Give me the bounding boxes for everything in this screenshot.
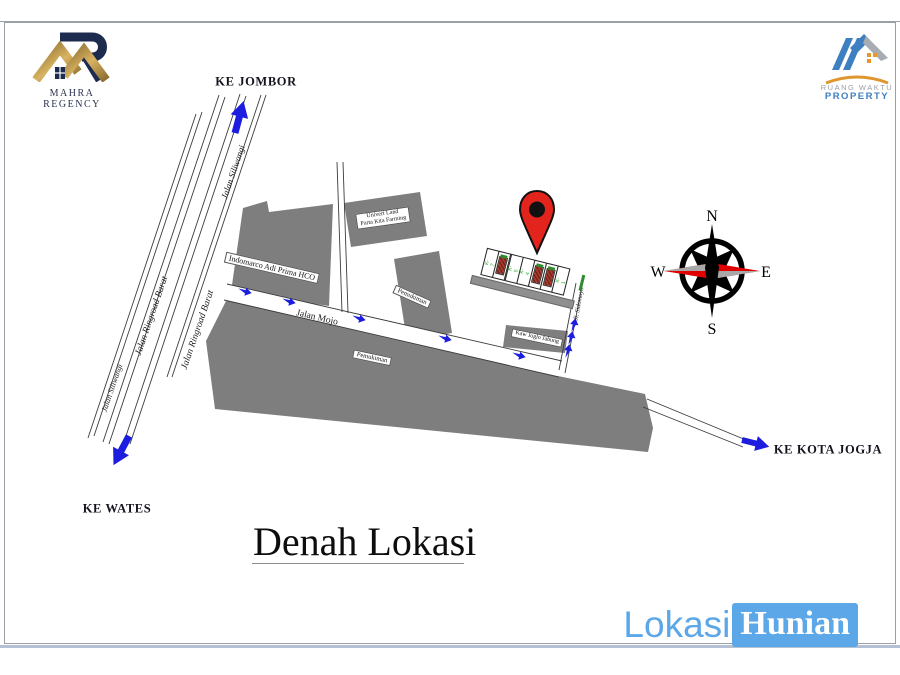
road-vertical-line [337,162,342,312]
logo-window-dot [867,59,871,63]
property-text: PROPERTY [825,91,889,100]
logo-roof-right [863,36,888,61]
watermark-hunian-badge: Hunian [732,603,858,647]
mahra-regency-logo-text: MAHRA REGENCY [26,88,118,110]
watermark-lokasi-text: Lokasi [623,604,730,646]
lokasi-hunian-watermark: Lokasi Hunian [623,603,858,647]
compass-e-label: E [761,264,771,281]
mahra-regency-logo: MAHRA REGENCY [26,30,118,110]
location-pin-icon [520,191,554,253]
road-vertical-line [343,162,348,313]
pin-body [520,191,554,253]
label-ke-kota-jogja: KE KOTA JOGJA [774,443,882,458]
ruang-waktu-property-logo: RUANG WAKTU PROPERTY [818,26,896,105]
label-ke-wates: KE WATES [83,502,152,517]
arrow-to-jombor [226,99,252,136]
map-canvas: N S W E [0,0,900,675]
compass-ns-point [705,224,719,318]
compass-n-label: N [706,208,718,225]
arrow-to-jogja [740,433,771,455]
compass-w-label: W [650,264,666,281]
road-jogja-line [643,407,743,447]
compass-s-label: S [708,321,717,338]
logo-window-dot [873,53,877,57]
label-ke-jombor: KE JOMBOR [215,75,296,90]
road-ringroad-line [103,95,219,442]
page-title: Denah Lokasi [253,518,476,565]
logo-window-dot [867,53,871,57]
page-title-underline [252,563,464,564]
ruang-waktu-logo-mark: RUANG WAKTU PROPERTY [820,26,894,100]
mahra-regency-logo-mark [28,30,116,82]
road-jogja-line [647,399,746,440]
compass-rose: N S W E [650,208,770,338]
pin-dot [529,202,545,218]
buildings-group [206,192,653,452]
